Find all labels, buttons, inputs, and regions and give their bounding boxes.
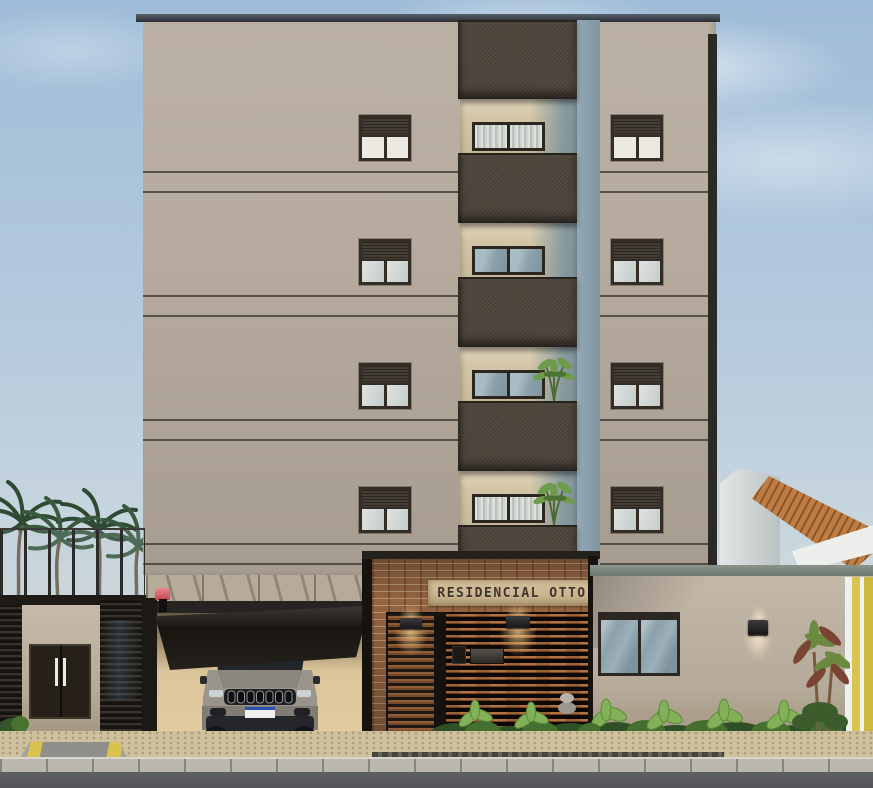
window-blind bbox=[614, 490, 660, 507]
window-pane bbox=[362, 261, 384, 282]
window-right-f3 bbox=[611, 363, 663, 409]
glass-pane bbox=[475, 373, 507, 396]
window-blind bbox=[614, 366, 660, 383]
ground-floor-window bbox=[598, 612, 680, 676]
intercom-panel[interactable] bbox=[452, 646, 466, 664]
glass-fence bbox=[0, 528, 145, 600]
balcony-recess-f2 bbox=[460, 221, 577, 277]
window-left-f1 bbox=[359, 115, 411, 161]
door-handle[interactable] bbox=[63, 658, 66, 686]
balcony-slab bbox=[458, 401, 577, 471]
sconce-downglow bbox=[390, 630, 432, 668]
balcony-recess-f4 bbox=[460, 469, 577, 525]
window-blind bbox=[362, 366, 408, 383]
floor-line bbox=[143, 191, 708, 193]
window-pane bbox=[639, 137, 661, 158]
window-right-f1 bbox=[611, 115, 663, 161]
architectural-render-scene: RESIDENCIAL OTTO bbox=[0, 0, 873, 788]
balcony-slab bbox=[458, 277, 577, 347]
window-pane bbox=[387, 137, 409, 158]
window-blind bbox=[614, 242, 660, 259]
balcony-recess-f3 bbox=[460, 345, 577, 401]
door-handle[interactable] bbox=[55, 658, 58, 686]
window-pane bbox=[362, 509, 384, 530]
gate-warning-light-base bbox=[159, 599, 167, 612]
window-pane bbox=[639, 385, 661, 406]
entrance-top-cap bbox=[362, 551, 600, 559]
glass-pane bbox=[510, 249, 542, 272]
floor-line bbox=[143, 295, 708, 297]
window-right-f2 bbox=[611, 239, 663, 285]
balcony-window bbox=[472, 122, 545, 151]
balcony-plant bbox=[533, 475, 575, 525]
window-left-f3 bbox=[359, 363, 411, 409]
window-pane bbox=[362, 137, 384, 158]
glass-pane bbox=[601, 620, 638, 673]
window-pane bbox=[614, 261, 636, 282]
wall-sconce bbox=[748, 620, 768, 636]
window-pane bbox=[387, 509, 409, 530]
building-roof-cap bbox=[136, 14, 720, 22]
balcony-slab bbox=[458, 153, 577, 223]
window-pane bbox=[387, 385, 409, 406]
window-pane bbox=[639, 509, 661, 530]
window-pane bbox=[387, 261, 409, 282]
balcony-recess-f1 bbox=[460, 97, 577, 153]
door-split bbox=[60, 646, 62, 717]
entrance-sconce-left bbox=[400, 618, 422, 630]
window-pane bbox=[614, 509, 636, 530]
window-blind bbox=[614, 118, 660, 135]
street-asphalt bbox=[0, 772, 873, 788]
sconce-downglow bbox=[740, 636, 776, 672]
sconce-upglow bbox=[502, 598, 534, 616]
building-right-edge bbox=[708, 34, 717, 575]
window-pane bbox=[614, 385, 636, 406]
sconce-upglow bbox=[748, 598, 770, 620]
gate-post bbox=[142, 598, 157, 740]
ti-plant bbox=[790, 592, 850, 752]
balcony-plant bbox=[533, 351, 575, 401]
floor-line bbox=[143, 419, 708, 421]
balcony-slab bbox=[458, 20, 577, 99]
glass-pane bbox=[475, 249, 507, 272]
balcony-bay-side-wall bbox=[577, 20, 600, 575]
window-blind bbox=[362, 118, 408, 135]
window-pane bbox=[614, 137, 636, 158]
gate-reflection bbox=[100, 620, 142, 700]
glass-pane bbox=[641, 620, 678, 673]
entrance-frame-left bbox=[362, 556, 372, 738]
floor-line bbox=[143, 171, 708, 173]
window-blind bbox=[362, 242, 408, 259]
window-right-f4 bbox=[611, 487, 663, 533]
balcony-window bbox=[472, 246, 545, 275]
floor-line bbox=[143, 439, 708, 441]
window-pane bbox=[639, 261, 661, 282]
entrance-sconce-right bbox=[506, 616, 530, 629]
window-pane bbox=[362, 385, 384, 406]
curtain-pane bbox=[475, 125, 507, 148]
mailbox[interactable] bbox=[470, 648, 504, 664]
wall-coping bbox=[590, 565, 873, 576]
floor-line bbox=[143, 543, 708, 545]
utility-double-door[interactable] bbox=[29, 644, 91, 719]
window-left-f2 bbox=[359, 239, 411, 285]
carport-soffit bbox=[146, 575, 372, 603]
sconce-upglow bbox=[396, 600, 426, 618]
curtain-pane bbox=[475, 497, 507, 520]
floor-line bbox=[143, 315, 708, 317]
window-left-f4 bbox=[359, 487, 411, 533]
window-blind bbox=[362, 490, 408, 507]
curtain-pane bbox=[510, 125, 542, 148]
